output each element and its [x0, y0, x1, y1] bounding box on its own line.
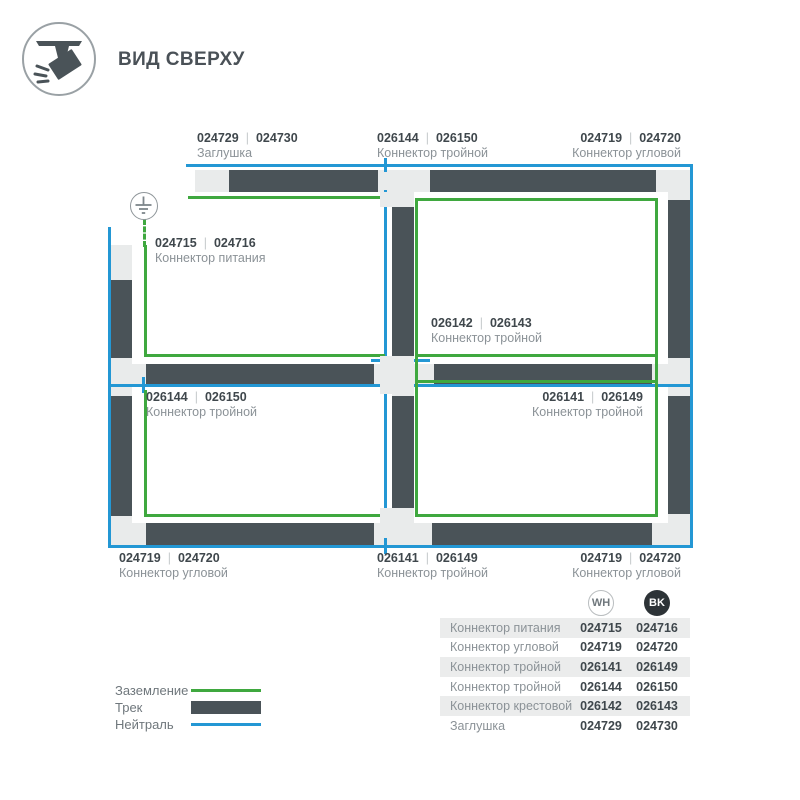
part-numbers: 024729|024730 — [197, 131, 298, 145]
track-segment — [392, 207, 414, 356]
part-label-tconnector-midright: 026141|026149 Коннектор тройной — [532, 390, 643, 419]
ground-line — [144, 514, 386, 517]
ground-line — [416, 354, 657, 357]
track-segment — [229, 170, 378, 192]
part-number-bk: 026143 — [629, 699, 685, 713]
part-name: Коннектор угловой — [119, 566, 228, 580]
part-number-bk: 026149 — [629, 660, 685, 674]
connector-junction — [380, 192, 414, 207]
part-name: Коннектор питания — [155, 251, 266, 265]
neutral-line — [384, 158, 387, 172]
table-row: Коннектор крестовой 026142 026143 — [440, 696, 690, 716]
earth-ground-icon — [130, 192, 158, 220]
part-number-wh: 026142 — [573, 699, 629, 713]
ground-line — [416, 514, 658, 517]
part-number-wh: 024715 — [573, 621, 629, 635]
part-name: Коннектор тройной — [146, 405, 257, 419]
part-label-center-connector: 026142|026143 Коннектор тройной — [431, 316, 542, 345]
track-segment — [110, 280, 132, 358]
neutral-line — [186, 164, 693, 167]
ground-line — [655, 198, 658, 517]
part-name: Коннектор крестовой — [450, 699, 573, 713]
track-segment — [146, 364, 374, 386]
ground-line — [415, 198, 418, 517]
part-name: Коннектор тройной — [450, 660, 573, 674]
track-spotlight-icon — [22, 22, 96, 96]
parts-table-header: WH BK — [440, 590, 690, 618]
ground-line — [416, 380, 658, 383]
part-numbers: 024719|024720 — [119, 551, 228, 565]
part-name: Коннектор тройной — [431, 331, 542, 345]
part-numbers: 026142|026143 — [431, 316, 542, 330]
track-segment — [668, 200, 690, 358]
part-label-tconnector-midleft: 026144|026150 Коннектор тройной — [146, 390, 257, 419]
part-number-wh: 024719 — [573, 640, 629, 654]
part-number-bk: 024730 — [629, 719, 685, 733]
color-badge-black: BK — [644, 590, 670, 616]
part-name: Коннектор угловой — [572, 146, 681, 160]
part-numbers: 026144|026150 — [146, 390, 257, 404]
page: ВИД СВЕРХУ — [0, 0, 800, 800]
part-numbers: 024719|024720 — [572, 551, 681, 565]
neutral-line — [108, 227, 111, 548]
part-label-corner-topright: 024719|024720 Коннектор угловой — [572, 131, 681, 160]
track-segment — [392, 396, 414, 514]
part-numbers: 026144|026150 — [377, 131, 488, 145]
blue-line-swatch — [191, 723, 261, 726]
table-row: Коннектор тройной 026141 026149 — [440, 657, 690, 677]
legend-item-ground: Заземление — [115, 682, 261, 698]
part-label-tconnector-bottom: 026141|026149 Коннектор тройной — [377, 551, 488, 580]
track-bar-swatch — [191, 701, 261, 714]
neutral-line — [384, 190, 387, 357]
part-name: Коннектор тройной — [450, 680, 573, 694]
neutral-line — [384, 394, 387, 512]
part-numbers: 026141|026149 — [532, 390, 643, 404]
table-row: Заглушка 024729 024730 — [440, 716, 690, 736]
part-name: Коннектор тройной — [377, 146, 488, 160]
connector-junction — [380, 508, 414, 523]
legend-label: Нейтраль — [115, 717, 191, 732]
part-numbers: 026141|026149 — [377, 551, 488, 565]
part-name: Заглушка — [197, 146, 298, 160]
part-name: Коннектор угловой — [572, 566, 681, 580]
part-label-corner-bottomright: 024719|024720 Коннектор угловой — [572, 551, 681, 580]
part-number-wh: 024729 — [573, 719, 629, 733]
part-number-wh: 026144 — [573, 680, 629, 694]
color-badge-white: WH — [588, 590, 614, 616]
legend-item-track: Трек — [115, 699, 261, 715]
page-title: ВИД СВЕРХУ — [118, 49, 245, 71]
part-name: Коннектор тройной — [532, 405, 643, 419]
legend-label: Трек — [115, 700, 191, 715]
table-row: Коннектор угловой 024719 024720 — [440, 638, 690, 658]
track-segment — [432, 523, 652, 545]
part-name: Коннектор питания — [450, 621, 573, 635]
part-number-bk: 024720 — [629, 640, 685, 654]
legend-item-neutral: Нейтраль — [115, 716, 261, 732]
neutral-line — [108, 545, 693, 548]
part-number-bk: 024716 — [629, 621, 685, 635]
part-numbers: 024715|024716 — [155, 236, 266, 250]
track-segment — [146, 523, 374, 545]
part-name: Коннектор угловой — [450, 640, 573, 654]
green-line-swatch — [191, 689, 261, 692]
parts-table: WH BK Коннектор питания 024715 024716 Ко… — [440, 590, 690, 736]
part-label-power-connector: 024715|024716 Коннектор питания — [155, 236, 266, 265]
neutral-line — [690, 164, 693, 548]
ground-line-dashed — [143, 219, 146, 247]
track-spotlight-glyph — [24, 24, 94, 94]
part-number-bk: 026150 — [629, 680, 685, 694]
table-row: Коннектор тройной 026144 026150 — [440, 677, 690, 697]
table-row: Коннектор питания 024715 024716 — [440, 618, 690, 638]
ground-line — [146, 354, 385, 357]
part-label-tconnector-top: 026144|026150 Коннектор тройной — [377, 131, 488, 160]
connector-junction — [380, 356, 414, 394]
legend: Заземление Трек Нейтраль — [115, 682, 261, 732]
part-label-corner-bottomleft: 024719|024720 Коннектор угловой — [119, 551, 228, 580]
part-name: Заглушка — [450, 719, 573, 733]
ground-line — [188, 196, 385, 199]
legend-label: Заземление — [115, 683, 191, 698]
part-number-wh: 026141 — [573, 660, 629, 674]
earth-ground-glyph — [131, 193, 156, 218]
part-numbers: 024719|024720 — [572, 131, 681, 145]
ground-line — [144, 245, 147, 357]
part-label-endcap-top: 024729|024730 Заглушка — [197, 131, 298, 160]
track-segment — [110, 396, 132, 516]
track-segment — [668, 396, 690, 514]
track-segment — [430, 170, 656, 192]
part-name: Коннектор тройной — [377, 566, 488, 580]
ground-line — [416, 198, 657, 201]
